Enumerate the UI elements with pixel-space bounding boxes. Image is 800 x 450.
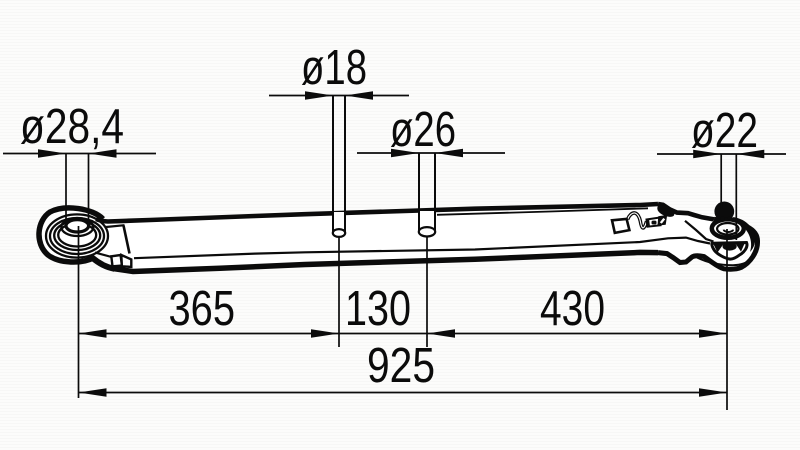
svg-text:ø18: ø18 <box>301 41 367 95</box>
svg-text:ø22: ø22 <box>691 104 758 158</box>
svg-text:ø26: ø26 <box>390 103 456 157</box>
svg-text:925: 925 <box>367 339 435 393</box>
svg-text:365: 365 <box>169 282 236 336</box>
svg-text:130: 130 <box>345 282 411 336</box>
svg-text:ø28,4: ø28,4 <box>20 100 124 154</box>
svg-text:430: 430 <box>540 282 605 336</box>
